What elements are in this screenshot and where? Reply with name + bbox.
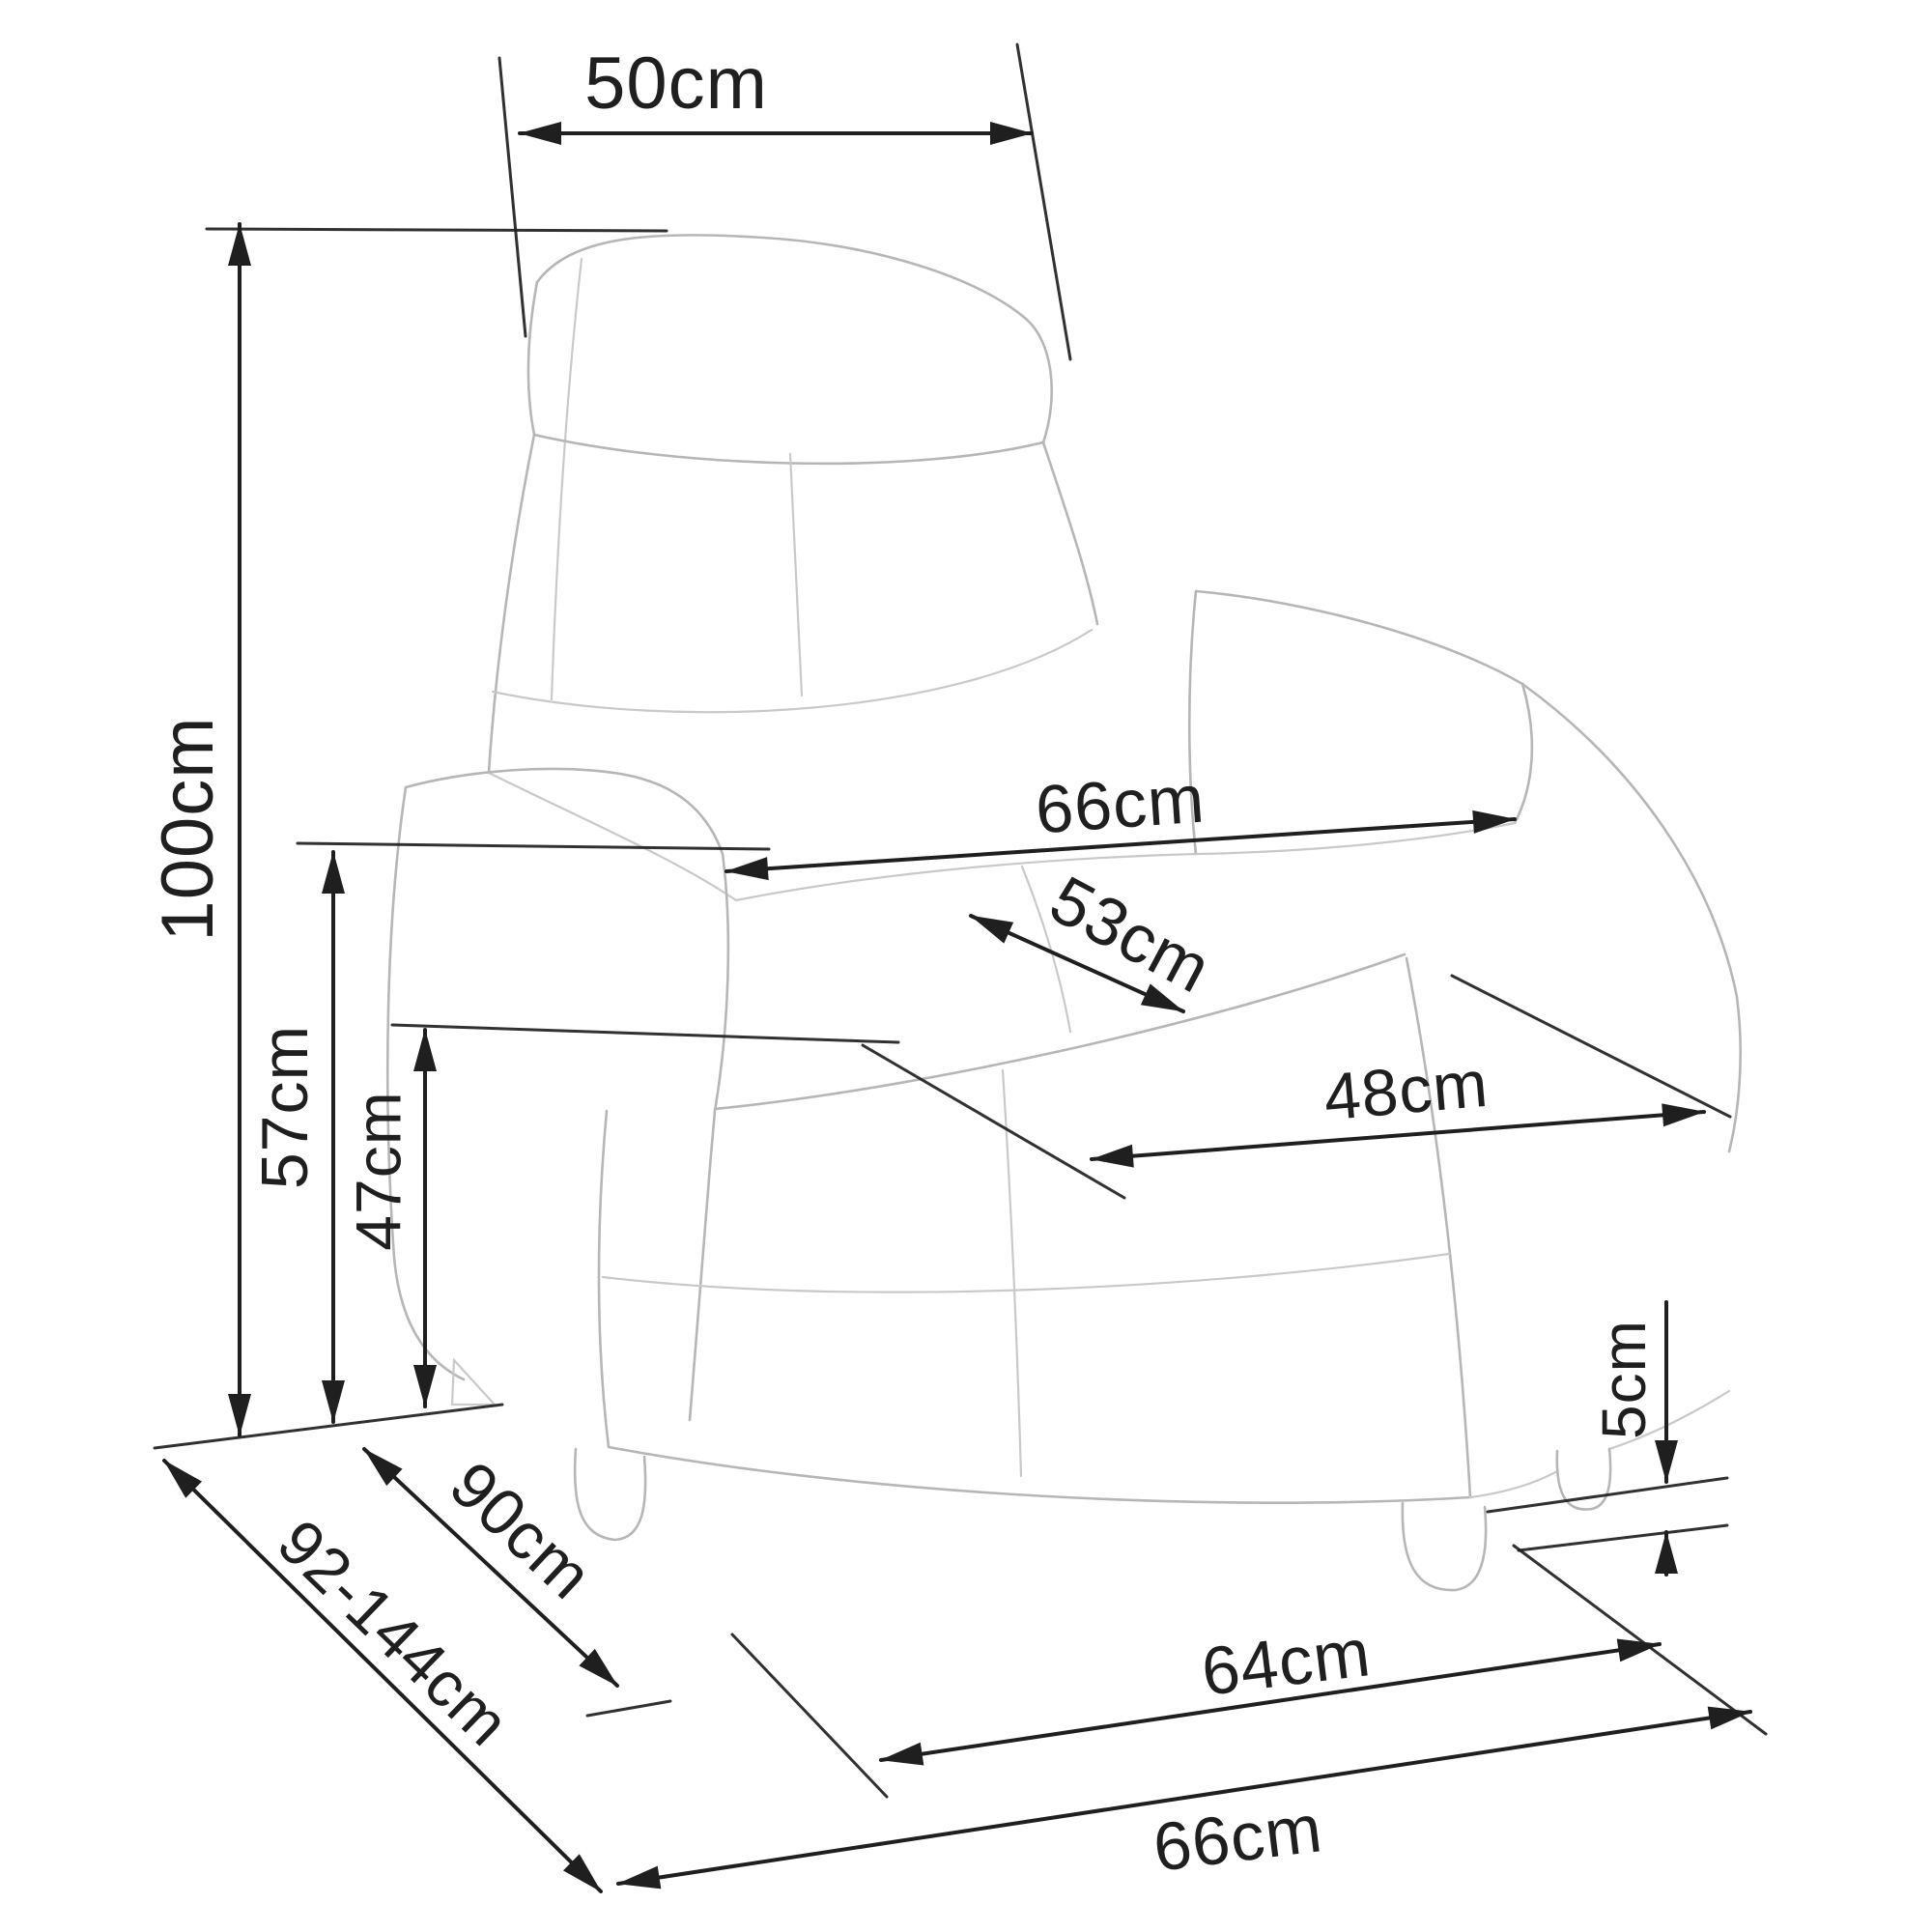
extension-line (298, 843, 769, 849)
extension-line (587, 1701, 670, 1716)
dimension-label: 50cm (584, 43, 768, 125)
footrest-left-edge (599, 1111, 609, 1447)
extension-line (1519, 1525, 1727, 1550)
armrest-right-outer (1522, 684, 1741, 1151)
extension-line (732, 1634, 887, 1797)
dimension-label: 5cm (1589, 1320, 1659, 1439)
backrest-bottom-seam (489, 773, 736, 900)
backrest-center-seam (790, 454, 802, 696)
extension-line (1017, 44, 1070, 359)
dimension-label: 90cm (436, 1447, 606, 1613)
extension-line (1488, 1478, 1727, 1512)
footrest-bottom-edge (609, 1447, 1470, 1503)
dimension-label: 66cm (1150, 1790, 1326, 1886)
extension-line (499, 58, 526, 336)
dimension-label: 53cm (1038, 862, 1223, 1008)
leg-front-right (1403, 1503, 1486, 1590)
recliner-dimension-diagram: 50cm 100cm 57cm 47cm 66cm 53cm 48cm (0, 0, 1932, 1932)
footrest-tuft-horizontal (603, 1254, 1449, 1293)
dim-overall-height: 100cm (147, 224, 667, 1448)
dimension-drawing: 50cm 100cm 57cm 47cm 66cm 53cm 48cm (0, 0, 1932, 1932)
backrest-outline (537, 235, 1097, 624)
dim-seat-height: 47cm (342, 1025, 898, 1406)
dim-width-between-armrests: 66cm (726, 760, 1515, 871)
seat-front-edge (715, 954, 1405, 1109)
dim-leg-height: 5cm (1488, 1302, 1727, 1575)
headrest-seam (534, 435, 1043, 464)
dim-seat-width: 48cm (863, 976, 1730, 1198)
armrest-right-corner (1515, 684, 1532, 823)
skirt-bottom-left (1470, 1471, 1557, 1497)
skirt-fold (452, 1360, 495, 1405)
extension-line (207, 229, 667, 231)
leg-front-left (575, 1449, 645, 1540)
footrest-right-edge (1406, 958, 1470, 1497)
dim-seat-depth: 53cm (971, 862, 1223, 1011)
armrest-left-front (690, 854, 728, 1420)
dimension-label: 100cm (147, 716, 229, 941)
armrest-right-top (1196, 591, 1522, 684)
armrest-left-top (406, 769, 723, 854)
dimension-label: 64cm (1198, 1614, 1375, 1710)
dim-armrest-height: 57cm (248, 843, 769, 1422)
extension-line (392, 1025, 898, 1042)
extension-line (1514, 1546, 1766, 1734)
dimension-label: 66cm (1034, 760, 1207, 847)
extension-line (1452, 976, 1730, 1117)
dimension-label: 48cm (1321, 1047, 1491, 1135)
dimension-label: 47cm (342, 1091, 413, 1250)
floor-baseline (155, 1405, 502, 1448)
dim-base-front-width: 64cm (732, 1546, 1766, 1797)
dimension-label: 57cm (248, 1025, 322, 1189)
dim-overall-width: 66cm (618, 1712, 1750, 1886)
backrest-tuft-seam (493, 630, 1092, 712)
extension-line (863, 1045, 1124, 1198)
dim-backrest-top-width: 50cm (499, 43, 1070, 359)
backrest-side-strip (552, 259, 582, 699)
